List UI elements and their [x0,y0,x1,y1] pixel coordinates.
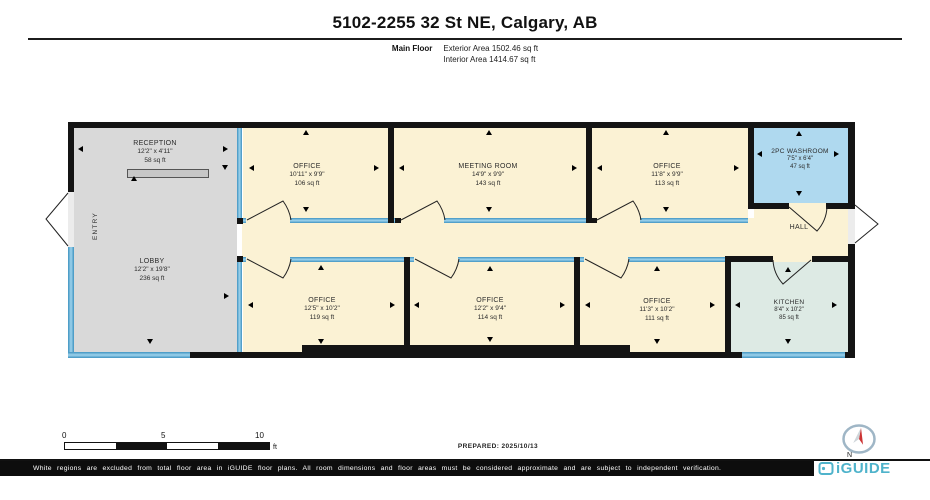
wall-interior [388,128,394,223]
exit-double-door-icon [855,205,878,243]
dimension-arrow-icon [757,151,762,157]
wall-exterior-right [848,122,855,204]
wall-interior [748,128,754,209]
glass-wall [237,128,242,218]
dimension-arrow-icon [796,131,802,136]
disclaimer-text: White regions are excluded from total fl… [33,465,721,472]
room-label-office-3: OFFICE 12'5" x 10'2" 119 sq ft [304,296,340,322]
dimension-arrow-icon [248,302,253,308]
room-label-meeting: MEETING ROOM 14'9" x 9'9" 143 sq ft [458,162,517,188]
iguide-logo-text: iGUIDE [836,460,891,477]
room-label-office-5: OFFICE 11'3" x 10'2" 111 sq ft [639,297,674,323]
dimension-arrow-icon [223,146,228,152]
scale-tick-0: 0 [62,431,66,440]
prepared-date: PREPARED: 2025/10/13 [398,443,598,450]
wall-interior [586,128,592,223]
dimension-arrow-icon [735,302,740,308]
wall-exterior-bottom [845,352,855,358]
dimension-arrow-icon [597,165,602,171]
room-label-entry: ENTRY [92,212,99,240]
door-gap [596,218,640,223]
area-summary: Exterior Area 1502.46 sq ft Interior Are… [443,43,538,65]
dimension-arrow-icon [663,130,669,135]
dimension-arrow-icon [654,339,660,344]
scale-tick-10: 10 [255,431,264,440]
room-label-lobby: LOBBY 12'2" x 19'8" 236 sq ft [134,257,170,283]
page-title: 5102-2255 32 St NE, Calgary, AB [0,13,930,33]
dimension-arrow-icon [585,302,590,308]
dimension-arrow-icon [303,130,309,135]
glass-wall [237,262,242,352]
title-rule [28,38,902,40]
window-wall [742,352,845,358]
dimension-arrow-icon [303,207,309,212]
door-gap [400,218,444,223]
dimension-arrow-icon [572,165,577,171]
entry-double-door-icon [46,193,68,246]
room-label-office-1: OFFICE 10'11" x 9'9" 106 sq ft [289,162,324,188]
compass-rose [840,423,878,462]
wall-hall-kitchen [725,256,773,262]
north-label: N [847,452,852,459]
exit-door-gap [848,204,855,244]
dimension-arrow-icon [785,267,791,272]
door-hinge [395,218,401,223]
dimension-arrow-icon [399,165,404,171]
wall-exterior-right [848,244,855,358]
room-label-washroom: 2PC WASHROOM 7'5" x 6'4" 47 sq ft [771,148,829,172]
wall-bottom-ledge [302,345,630,352]
dimension-arrow-icon [414,302,419,308]
dimension-arrow-icon [487,266,493,271]
wall-cap [237,218,243,224]
exterior-area: Exterior Area 1502.46 sq ft [443,44,538,53]
dimension-arrow-icon [796,191,802,196]
dimension-arrow-icon [834,151,839,157]
dimension-arrow-icon [785,339,791,344]
room-label-kitchen: KITCHEN 8'4" x 10'2" 85 sq ft [774,299,805,323]
door-gap [584,257,628,262]
dimension-arrow-icon [486,130,492,135]
room-hall-corridor [242,218,754,262]
dimension-arrow-icon [560,302,565,308]
room-label-office-4: OFFICE 12'2" x 9'4" 114 sq ft [474,296,506,322]
wall-hall-kitchen [812,256,848,262]
window-wall [68,247,74,352]
glass-wall [243,218,748,223]
dimension-arrow-icon [131,176,137,181]
dimension-arrow-icon [222,165,228,170]
reception-counter [127,169,209,178]
wall-washroom-bottom [748,203,789,209]
door-gap [246,218,290,223]
dimension-arrow-icon [663,207,669,212]
room-label-hall: HALL [790,223,809,232]
dimension-arrow-icon [318,265,324,270]
door-gap [246,257,290,262]
wall-interior [574,257,580,352]
wall-exterior-bottom [190,352,742,358]
wall-washroom-bottom [826,203,855,209]
wall-interior [404,257,410,352]
room-label-reception: RECEPTION 12'2" x 4'11" 58 sq ft [133,139,177,165]
dimension-arrow-icon [832,302,837,308]
dimension-arrow-icon [78,146,83,152]
glass-wall [243,257,725,262]
door-gap [414,257,458,262]
iguide-logo: iGUIDE [818,460,891,477]
dimension-arrow-icon [734,165,739,171]
dimension-arrow-icon [654,266,660,271]
dimension-arrow-icon [487,337,493,342]
dimension-arrow-icon [224,293,229,299]
dimension-arrow-icon [486,207,492,212]
disclaimer-bar: White regions are excluded from total fl… [0,461,814,476]
compass-needle-icon [840,423,878,457]
wall-exterior-left [68,122,74,192]
interior-area: Interior Area 1414.67 sq ft [443,55,535,64]
dimension-arrow-icon [147,339,153,344]
floor-summary: Main Floor Exterior Area 1502.46 sq ft I… [0,43,930,65]
room-hall-right [754,203,848,262]
scale-bar-rule [64,442,270,450]
window-wall [68,352,190,358]
dimension-arrow-icon [249,165,254,171]
entry-door-gap [68,192,74,247]
dimension-arrow-icon [710,302,715,308]
iguide-logo-icon [818,461,834,476]
scale-unit: ft [273,444,277,451]
scale-tick-5: 5 [161,431,165,440]
wall-interior [725,257,731,352]
door-hinge [591,218,597,223]
wall-cap [237,256,243,262]
wall-exterior-top [68,122,855,128]
room-label-office-2: OFFICE 11'8" x 9'9" 113 sq ft [651,162,683,188]
dimension-arrow-icon [374,165,379,171]
dimension-arrow-icon [390,302,395,308]
floor-label: Main Floor [392,43,432,65]
dimension-arrow-icon [318,339,324,344]
